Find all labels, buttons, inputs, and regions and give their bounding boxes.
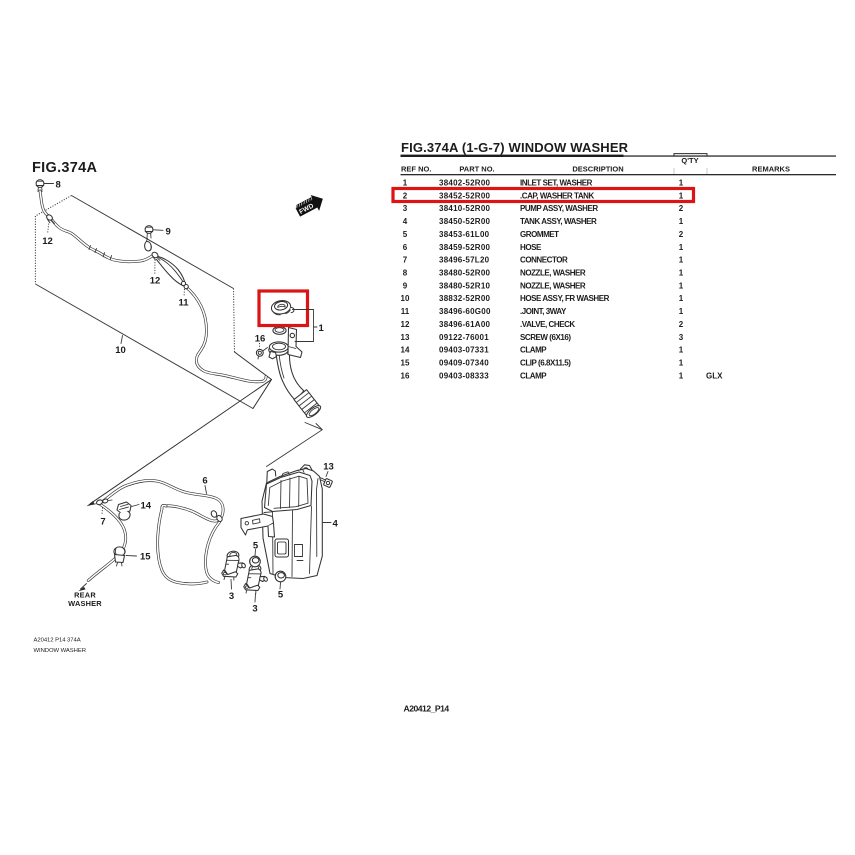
- svg-text:09122-76001: 09122-76001: [439, 333, 489, 342]
- svg-text:38459-52R00: 38459-52R00: [439, 243, 491, 252]
- svg-text:38480-52R10: 38480-52R10: [439, 281, 491, 290]
- svg-text:HOSE: HOSE: [520, 243, 542, 252]
- svg-text:1: 1: [403, 178, 408, 187]
- svg-text:3: 3: [252, 604, 257, 615]
- svg-text:1: 1: [679, 217, 684, 226]
- svg-text:REF NO.: REF NO.: [401, 164, 431, 173]
- svg-text:8: 8: [403, 269, 408, 278]
- svg-text:1: 1: [679, 307, 684, 316]
- svg-text:CLAMP: CLAMP: [520, 372, 547, 381]
- svg-text:A20412_P14: A20412_P14: [404, 704, 450, 714]
- svg-text:5: 5: [403, 230, 408, 239]
- svg-text:FIG.374A (1-G-7) WINDOW WASHER: FIG.374A (1-G-7) WINDOW WASHER: [401, 140, 629, 155]
- svg-text:13: 13: [323, 462, 334, 473]
- svg-text:38410-52R00: 38410-52R00: [439, 204, 491, 213]
- svg-text:NOZZLE, WASHER: NOZZLE, WASHER: [520, 281, 586, 290]
- svg-text:12: 12: [150, 276, 161, 287]
- svg-text:38496-60G00: 38496-60G00: [439, 307, 491, 316]
- svg-text:1: 1: [679, 178, 684, 187]
- svg-text:38450-52R00: 38450-52R00: [439, 217, 491, 226]
- svg-text:TANK ASSY, WASHER: TANK ASSY, WASHER: [520, 217, 597, 226]
- svg-text:REMARKS: REMARKS: [752, 164, 790, 173]
- svg-text:1: 1: [679, 191, 684, 200]
- svg-text:13: 13: [401, 333, 410, 342]
- svg-text:11: 11: [178, 298, 189, 309]
- svg-text:2: 2: [679, 230, 684, 239]
- svg-text:PUMP ASSY, WASHER: PUMP ASSY, WASHER: [520, 204, 598, 213]
- svg-text:10: 10: [115, 345, 126, 356]
- svg-text:11: 11: [401, 307, 410, 316]
- svg-text:2: 2: [679, 204, 684, 213]
- svg-text:9: 9: [166, 227, 171, 238]
- svg-text:5: 5: [253, 541, 259, 552]
- svg-text:SCREW (6X16): SCREW (6X16): [520, 333, 571, 342]
- svg-text:38452-52R00: 38452-52R00: [439, 191, 491, 200]
- svg-text:1: 1: [679, 294, 684, 303]
- svg-text:4: 4: [403, 217, 408, 226]
- svg-text:3: 3: [679, 333, 684, 342]
- svg-text:3: 3: [229, 591, 234, 602]
- svg-text:14: 14: [401, 346, 410, 355]
- svg-text:.JOINT, 3WAY: .JOINT, 3WAY: [520, 307, 567, 316]
- svg-text:FIG.374A: FIG.374A: [32, 160, 97, 176]
- svg-text:38832-52R00: 38832-52R00: [439, 294, 491, 303]
- svg-text:1: 1: [679, 346, 684, 355]
- svg-text:DESCRIPTION: DESCRIPTION: [572, 164, 623, 173]
- svg-text:12: 12: [401, 320, 410, 329]
- svg-text:1: 1: [679, 256, 684, 265]
- svg-text:38496-57L20: 38496-57L20: [439, 256, 490, 265]
- svg-text:10: 10: [401, 294, 410, 303]
- svg-text:38402-52R00: 38402-52R00: [439, 178, 491, 187]
- svg-text:1: 1: [679, 372, 684, 381]
- svg-text:38496-61A00: 38496-61A00: [439, 320, 491, 329]
- svg-text:1: 1: [679, 281, 684, 290]
- svg-text:WINDOW WASHER: WINDOW WASHER: [34, 648, 86, 654]
- svg-text:7: 7: [403, 256, 408, 265]
- svg-text:NOZZLE, WASHER: NOZZLE, WASHER: [520, 269, 586, 278]
- svg-text:.VALVE, CHECK: .VALVE, CHECK: [520, 320, 575, 329]
- svg-text:CLIP (6.8X11.5): CLIP (6.8X11.5): [520, 359, 571, 368]
- svg-text:09403-07331: 09403-07331: [439, 346, 489, 355]
- svg-text:.CAP, WASHER TANK: .CAP, WASHER TANK: [520, 191, 595, 200]
- svg-text:WASHER: WASHER: [68, 599, 102, 608]
- svg-text:CLAMP: CLAMP: [520, 346, 547, 355]
- svg-text:15: 15: [401, 359, 410, 368]
- svg-text:16: 16: [255, 334, 266, 345]
- svg-text:09403-08333: 09403-08333: [439, 372, 489, 381]
- svg-text:2: 2: [403, 191, 408, 200]
- svg-text:09409-07340: 09409-07340: [439, 359, 489, 368]
- svg-text:5: 5: [278, 590, 284, 601]
- svg-text:6: 6: [403, 243, 408, 252]
- svg-text:INLET SET, WASHER: INLET SET, WASHER: [520, 178, 593, 187]
- svg-text:6: 6: [202, 476, 207, 487]
- svg-text:8: 8: [56, 180, 61, 191]
- svg-text:1: 1: [319, 323, 325, 334]
- svg-text:14: 14: [141, 501, 152, 512]
- svg-text:GROMMET: GROMMET: [520, 230, 559, 239]
- svg-text:1: 1: [679, 359, 684, 368]
- svg-text:38453-61L00: 38453-61L00: [439, 230, 490, 239]
- svg-text:4: 4: [333, 519, 339, 530]
- svg-text:GLX: GLX: [706, 372, 723, 381]
- svg-text:PART NO.: PART NO.: [459, 164, 494, 173]
- svg-text:12: 12: [42, 236, 53, 247]
- svg-text:38480-52R00: 38480-52R00: [439, 269, 491, 278]
- svg-text:A20412 P14 374A: A20412 P14 374A: [34, 638, 81, 644]
- svg-text:HOSE ASSY, FR WASHER: HOSE ASSY, FR WASHER: [520, 294, 610, 303]
- svg-text:15: 15: [140, 552, 151, 563]
- svg-text:1: 1: [679, 269, 684, 278]
- svg-text:CONNECTOR: CONNECTOR: [520, 256, 568, 265]
- svg-text:1: 1: [679, 243, 684, 252]
- svg-text:16: 16: [401, 372, 410, 381]
- svg-text:3: 3: [403, 204, 408, 213]
- svg-text:2: 2: [679, 320, 684, 329]
- svg-text:Q'TY: Q'TY: [681, 156, 698, 165]
- svg-text:7: 7: [100, 517, 105, 528]
- svg-text:9: 9: [403, 281, 408, 290]
